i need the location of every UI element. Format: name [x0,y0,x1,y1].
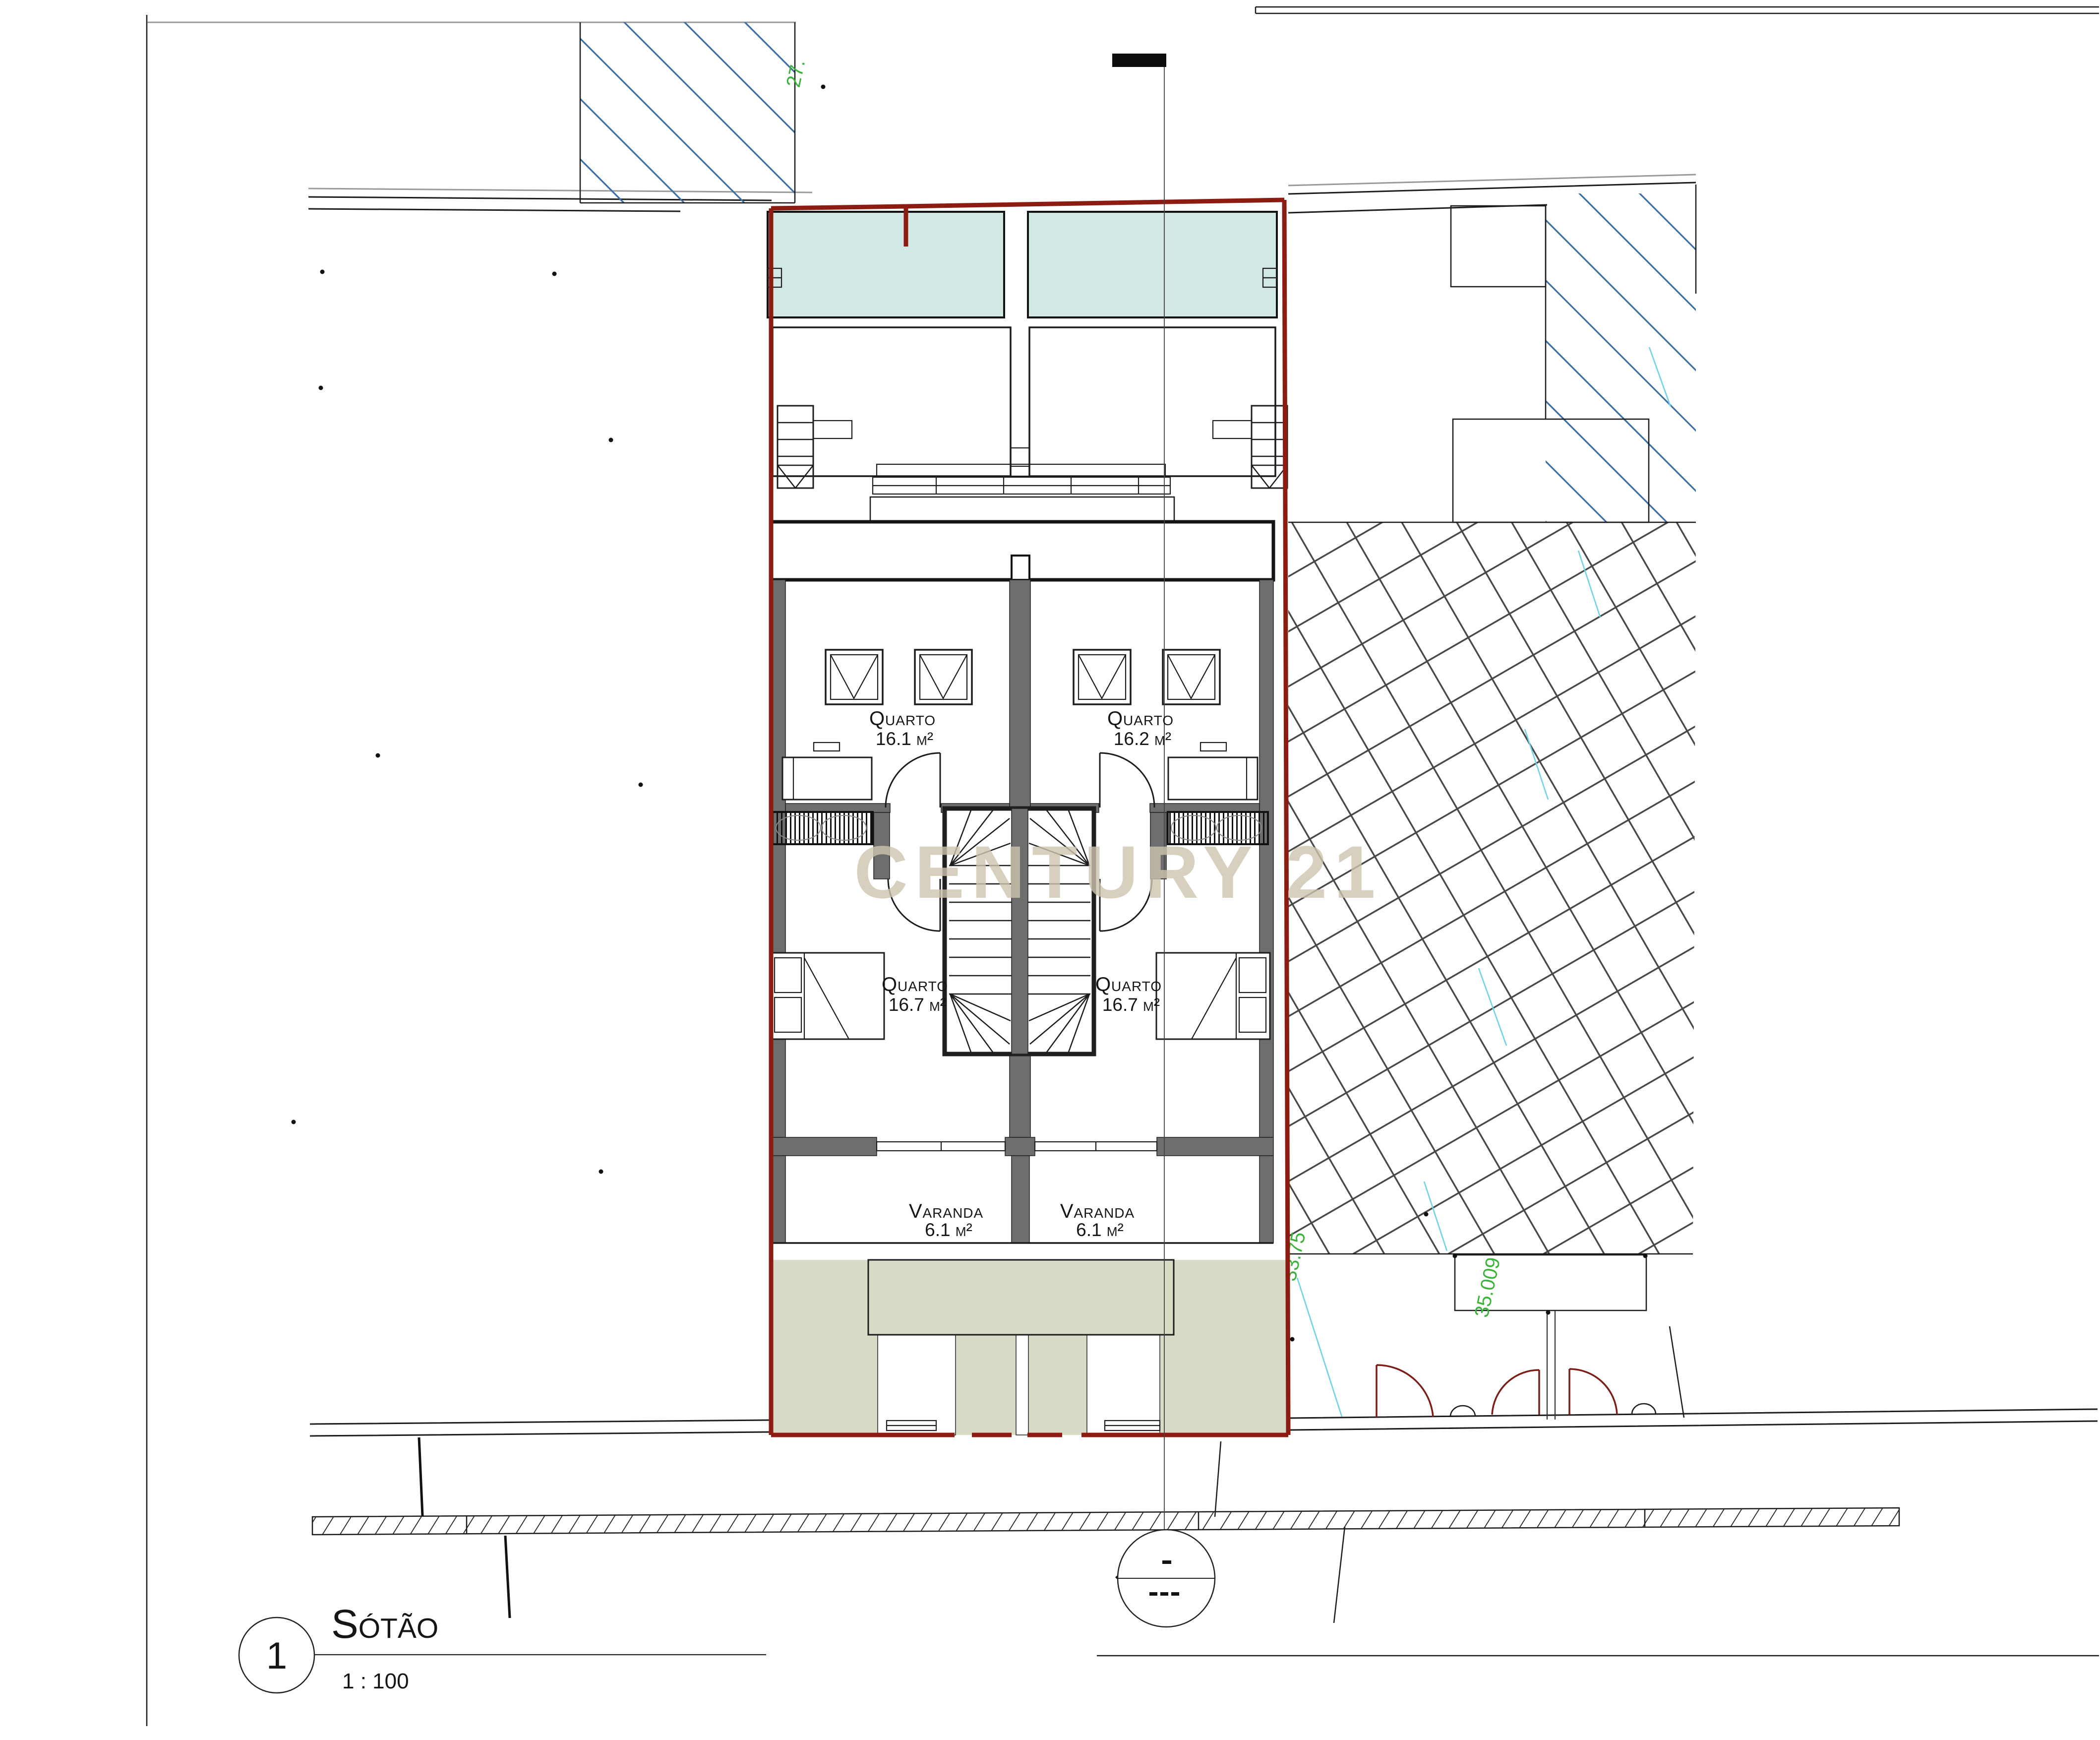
plan-title: Sótão [331,1602,438,1647]
upper-volume-left [773,327,1011,476]
room-name: Varanda [909,1200,983,1222]
century21-watermark: CENTURY 21 [854,830,1382,914]
plan-scale: 1 : 100 [342,1669,409,1693]
room-area: 6.1 m² [925,1220,972,1240]
glass-panel-right [1028,212,1277,317]
sheet-number: 1 [266,1635,287,1677]
title-block: 1 Sótão 1 : 100 [239,1602,766,1693]
room-name: Quarto [1107,708,1174,730]
gate-swing-3 [1569,1369,1617,1415]
railing [873,477,1170,494]
room-name: Quarto [869,708,936,730]
room-name: Quarto [882,974,948,995]
lawn [772,1260,1288,1435]
room-name: Quarto [1095,974,1162,995]
neighbor-structure [1451,206,1546,287]
room-area: 16.1 m² [876,729,933,749]
neighbor-parcel-topleft [580,22,795,203]
blue-hatch-area [1546,193,1696,522]
room-area: 16.7 m² [1102,994,1160,1015]
site-features-right [1288,185,1696,1420]
upper-volume-right [1029,327,1275,476]
glass-panel-left [768,212,1004,317]
room-area: 16.2 m² [1114,729,1171,749]
gate-swing-2 [1492,1370,1539,1415]
room-area: 16.7 m² [889,994,946,1015]
roof-tile-strip [870,497,1174,521]
section-cut-top [1112,54,1166,67]
garden [772,1260,1288,1435]
building [768,212,1288,1435]
survey-label-35: 35.009 [1471,1255,1504,1319]
floor-plan-canvas: 27. 33.75 35.009 [0,0,2100,1740]
section-flag [1112,54,1166,67]
room-name: Varanda [1060,1200,1135,1222]
room-area: 6.1 m² [1076,1220,1124,1240]
gate-swing-1 [1377,1365,1433,1417]
